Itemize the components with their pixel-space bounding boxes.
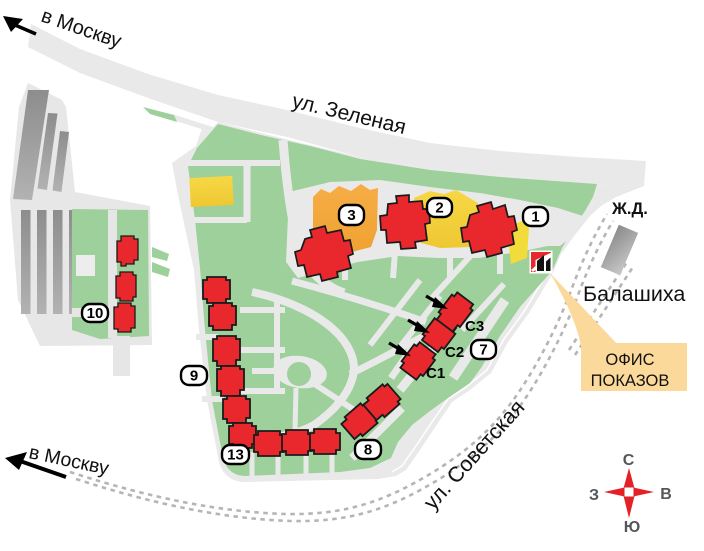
svg-text:Ю: Ю xyxy=(624,519,641,536)
svg-text:С: С xyxy=(623,452,635,469)
svg-text:С3: С3 xyxy=(465,318,484,335)
svg-text:13: 13 xyxy=(227,447,244,464)
svg-text:З: З xyxy=(589,487,599,504)
svg-text:1: 1 xyxy=(531,209,539,226)
svg-text:10: 10 xyxy=(87,305,104,322)
svg-text:С1: С1 xyxy=(426,365,445,382)
svg-text:Балашиха: Балашиха xyxy=(583,282,685,306)
svg-text:2: 2 xyxy=(435,200,443,217)
svg-text:9: 9 xyxy=(190,368,198,385)
svg-text:7: 7 xyxy=(479,342,487,359)
svg-text:в Москву: в Москву xyxy=(27,441,111,479)
svg-text:Ж.Д.: Ж.Д. xyxy=(611,200,648,218)
svg-text:ПОКАЗОВ: ПОКАЗОВ xyxy=(591,372,670,390)
svg-text:3: 3 xyxy=(347,207,355,224)
svg-text:8: 8 xyxy=(364,442,372,459)
svg-text:В: В xyxy=(660,486,672,503)
svg-text:ОФИС: ОФИС xyxy=(605,351,654,369)
svg-text:С2: С2 xyxy=(445,344,464,361)
